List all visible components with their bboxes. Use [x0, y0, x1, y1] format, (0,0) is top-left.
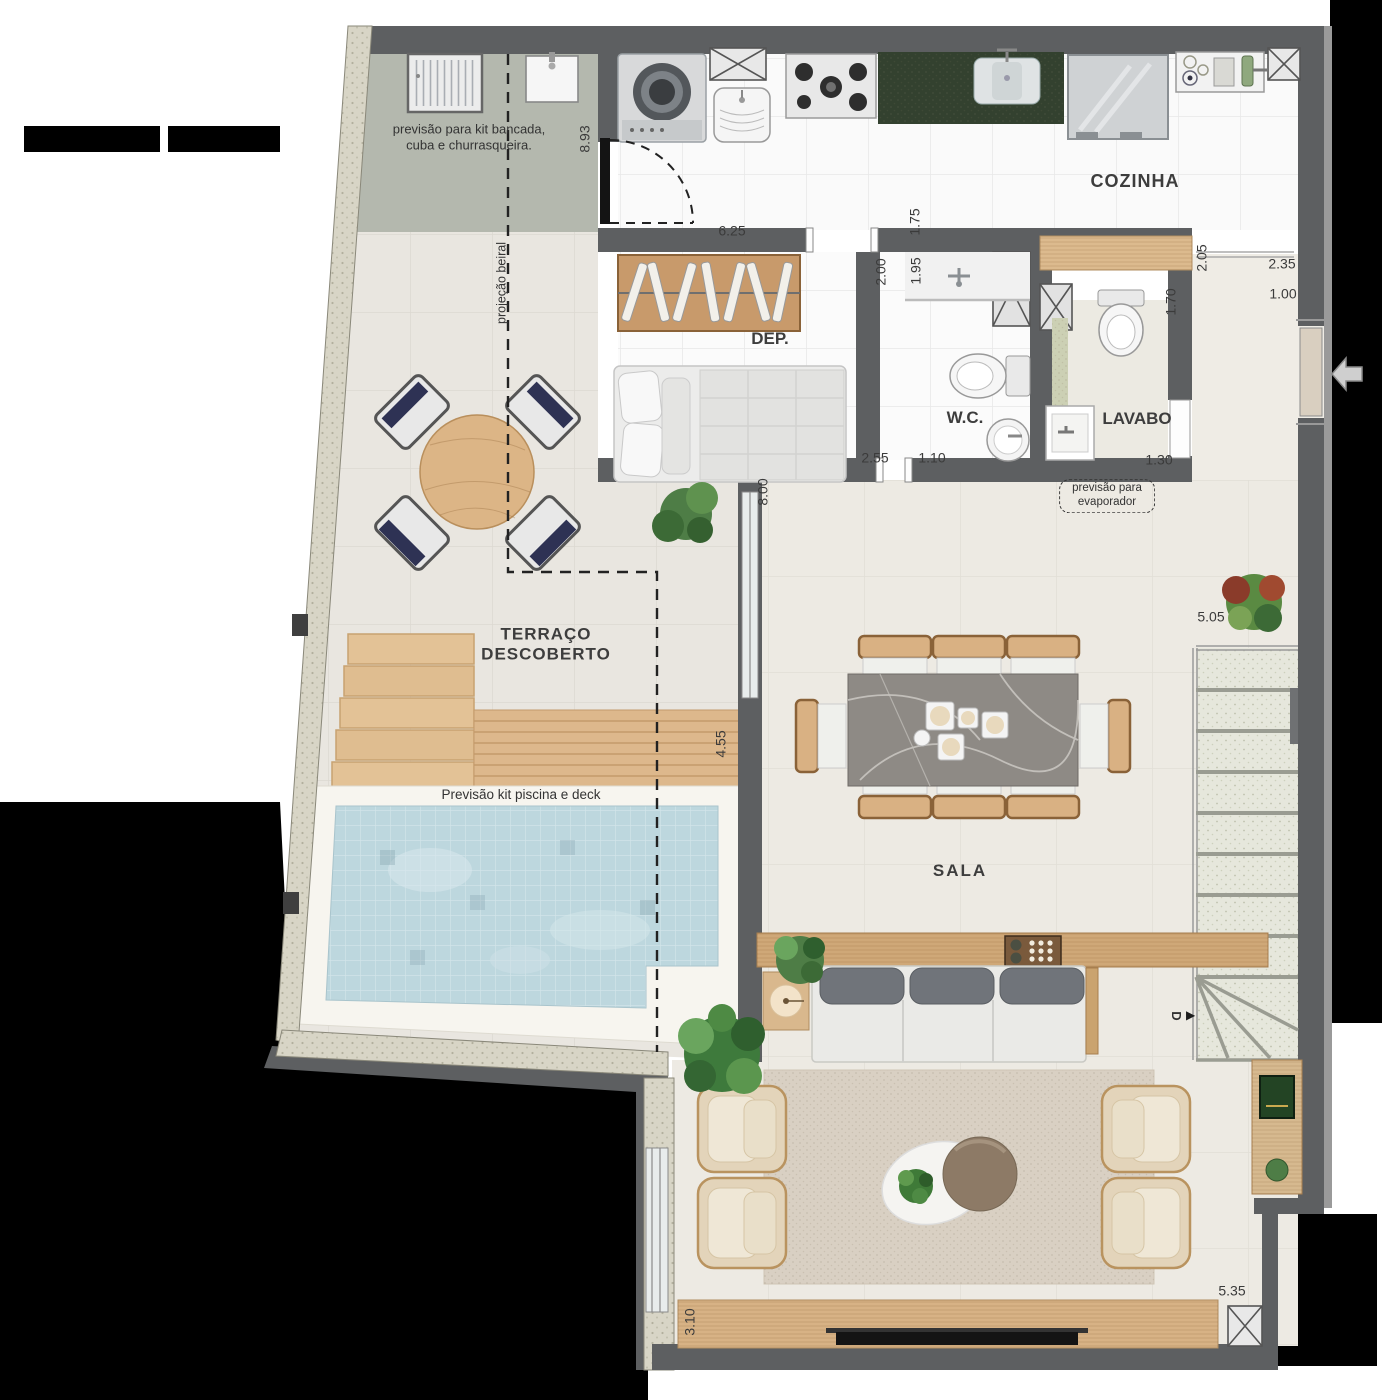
- dining-chair: [796, 700, 846, 772]
- shaft-kitchen-corner: [1268, 48, 1300, 80]
- shaft-kitchen-left: [710, 48, 766, 80]
- buffet-sideboard: [1252, 1060, 1302, 1194]
- dining-table: [848, 674, 1078, 786]
- tv: [836, 1332, 1078, 1345]
- tv-panel: [678, 1300, 1218, 1348]
- round-table: [420, 415, 534, 529]
- round-basin: [987, 419, 1029, 461]
- armchair: [698, 1178, 786, 1268]
- washing-machine: [618, 54, 706, 142]
- toilet: [950, 354, 1030, 398]
- floor-plan-drawing: [0, 0, 1382, 1400]
- shaft-bottom-right: [1228, 1306, 1262, 1346]
- deck-planks: [474, 710, 740, 788]
- armchair: [1102, 1086, 1190, 1172]
- dining-chair: [1080, 700, 1130, 772]
- entry-door: [1296, 320, 1324, 424]
- laundry-tank: [714, 88, 770, 142]
- wardrobe: [618, 255, 800, 331]
- hall-wood-shelf: [1040, 236, 1192, 270]
- single-bed: [614, 366, 846, 482]
- armchair: [1102, 1178, 1190, 1268]
- logo-redacted-bar-2: [168, 126, 280, 152]
- armchair: [698, 1086, 786, 1172]
- floor-plan-canvas: ▶ COZINHADEP.W.C.LAVABOTERRAÇO DESCOBERT…: [0, 0, 1382, 1400]
- plant-stairs-top: [1222, 574, 1285, 632]
- lavabo-toilet: [1098, 290, 1144, 356]
- logo-redacted-bar-1: [24, 126, 160, 152]
- deck-steps: [332, 634, 474, 788]
- counter-small-appliances: [1176, 52, 1267, 92]
- pool: [298, 786, 740, 1046]
- fridge: [1068, 55, 1168, 139]
- games-box: [1005, 936, 1061, 966]
- lavabo-washbasin: [1046, 406, 1094, 460]
- granite-counter: [878, 50, 1064, 124]
- sofa: [812, 966, 1098, 1062]
- bbq-sink: [526, 52, 578, 102]
- cooktop: [786, 54, 876, 118]
- grill: [408, 54, 482, 112]
